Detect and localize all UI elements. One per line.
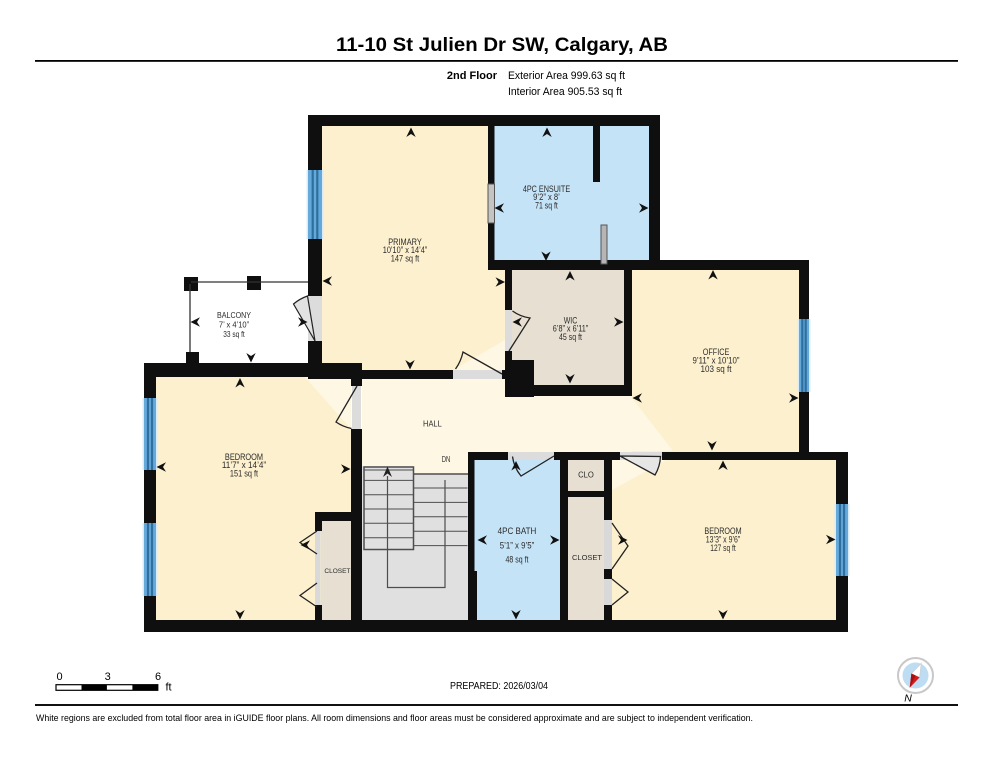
- svg-text:CLO: CLO: [578, 470, 594, 479]
- svg-text:3: 3: [105, 671, 111, 683]
- svg-text:ft: ft: [166, 682, 172, 694]
- svg-text:127 sq ft: 127 sq ft: [710, 543, 736, 553]
- svg-text:Exterior Area 999.63 sq ft: Exterior Area 999.63 sq ft: [508, 70, 625, 82]
- svg-text:HALL: HALL: [423, 419, 442, 428]
- svg-text:BALCONY: BALCONY: [217, 311, 251, 320]
- svg-text:DN: DN: [442, 455, 451, 464]
- svg-text:147 sq ft: 147 sq ft: [391, 253, 420, 263]
- svg-text:11-10 St Julien Dr SW, Calgary: 11-10 St Julien Dr SW, Calgary, AB: [336, 34, 668, 56]
- svg-text:White regions are excluded fro: White regions are excluded from total fl…: [36, 713, 753, 723]
- svg-text:151 sq ft: 151 sq ft: [230, 468, 259, 478]
- svg-text:48 sq ft: 48 sq ft: [506, 555, 529, 565]
- svg-text:CLOSET: CLOSET: [324, 568, 350, 575]
- svg-text:CLOSET: CLOSET: [572, 553, 602, 562]
- svg-text:5’1” x 9’5”: 5’1” x 9’5”: [500, 540, 534, 550]
- svg-text:2nd Floor: 2nd Floor: [447, 70, 498, 82]
- svg-text:N: N: [904, 693, 912, 705]
- svg-text:7’ x 4’10”: 7’ x 4’10”: [219, 321, 249, 330]
- svg-text:45 sq ft: 45 sq ft: [559, 332, 582, 342]
- svg-text:103 sq ft: 103 sq ft: [701, 364, 733, 374]
- svg-text:Interior Area 905.53 sq ft: Interior Area 905.53 sq ft: [508, 86, 622, 98]
- svg-text:0: 0: [56, 671, 62, 683]
- svg-text:6: 6: [155, 671, 161, 683]
- svg-text:4PC BATH: 4PC BATH: [498, 526, 537, 536]
- svg-text:PREPARED: 2026/03/04: PREPARED: 2026/03/04: [450, 680, 548, 692]
- svg-text:33 sq ft: 33 sq ft: [223, 330, 245, 339]
- svg-text:71 sq ft: 71 sq ft: [535, 200, 558, 210]
